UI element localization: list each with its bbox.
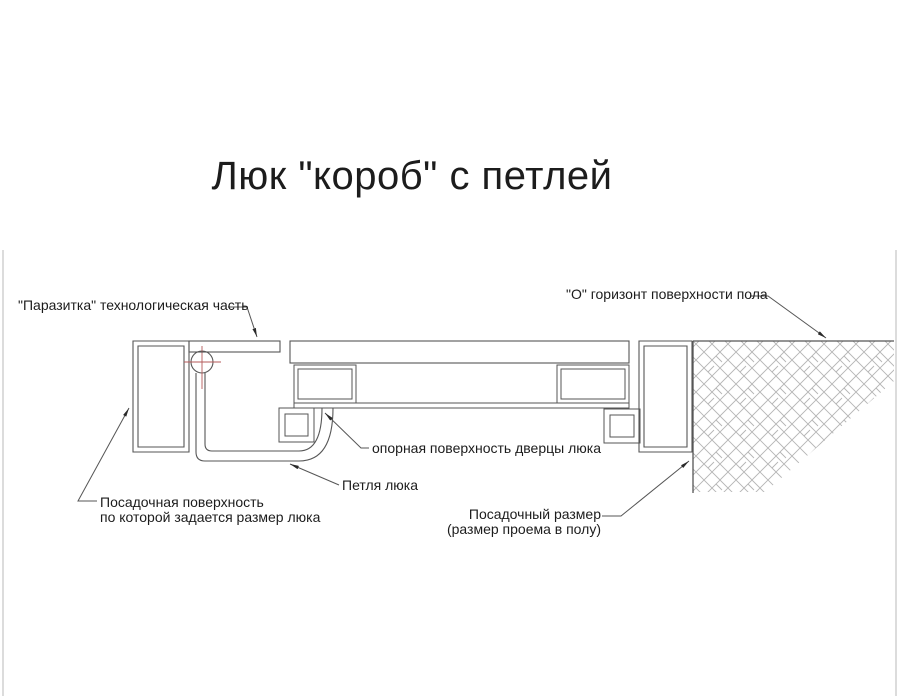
label-floor-horizon: "О" горизонт поверхности пола <box>566 287 768 302</box>
door-leaf-panel <box>290 341 629 363</box>
door-profile-left <box>294 365 356 403</box>
label-seating-size: Посадочный размер (размер проема в полу) <box>421 507 601 537</box>
door-profile-right <box>557 365 629 403</box>
floor-mass-hatch <box>693 341 894 492</box>
diagram-page: Люк "короб" с петлей "Паразитка" техноло… <box>0 0 900 700</box>
right-frame-profile <box>639 341 692 452</box>
support-gasket-right <box>604 409 640 443</box>
hatch-cross-section-drawing <box>0 0 900 700</box>
leader-floor-horizon <box>750 296 826 338</box>
leader-seating-size <box>602 461 689 516</box>
label-door-support: опорная поверхность дверцы люка <box>372 441 601 456</box>
parasitka-plate <box>189 341 280 352</box>
hinge-strap-inner <box>205 373 322 451</box>
label-seating-surface: Посадочная поверхность по которой задает… <box>100 495 320 525</box>
label-seating-surface-line1: Посадочная поверхность <box>100 495 320 510</box>
left-frame-profile <box>133 341 189 452</box>
leader-door-support <box>325 413 369 448</box>
hinge-strap-outer <box>196 373 333 461</box>
label-parasitka: "Паразитка" технологическая часть <box>18 298 249 313</box>
leader-hinge <box>290 464 339 485</box>
label-seating-size-line2: (размер проема в полу) <box>421 522 601 537</box>
label-hinge: Петля люка <box>342 478 418 493</box>
leader-seating-surface <box>78 408 129 501</box>
label-seating-size-line1: Посадочный размер <box>421 507 601 522</box>
label-seating-surface-line2: по которой задается размер люка <box>100 510 320 525</box>
door-bottom-plate <box>294 403 629 408</box>
page-title: Люк "короб" с петлей <box>0 154 824 199</box>
support-gasket-left <box>279 408 314 442</box>
